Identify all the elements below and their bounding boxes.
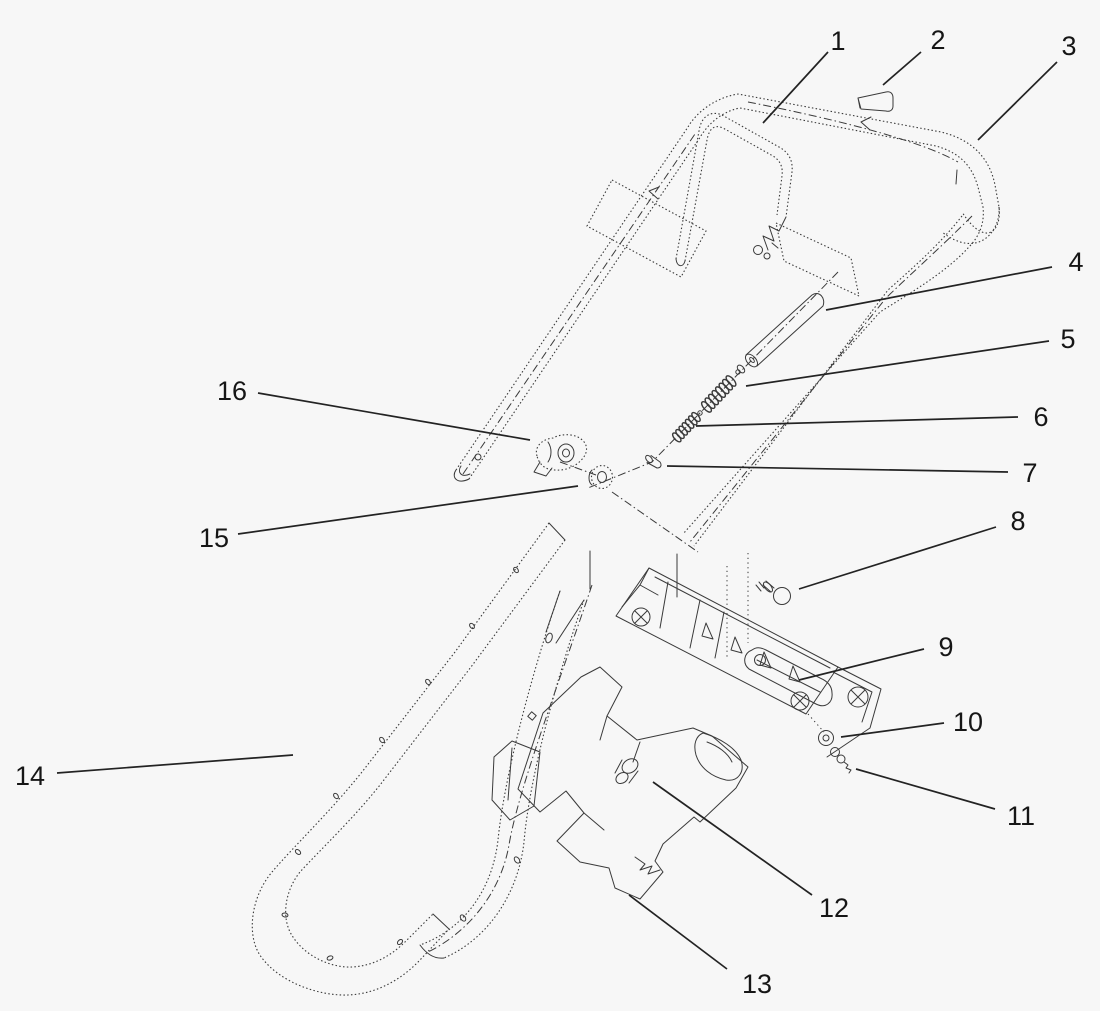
callout-7-label: 7 xyxy=(1022,458,1037,488)
callout-10-label: 10 xyxy=(953,707,983,737)
callout-12-label: 12 xyxy=(819,893,849,923)
callout-2-label: 2 xyxy=(930,25,945,55)
callout-1-label: 1 xyxy=(830,26,845,56)
callout-3-label: 3 xyxy=(1061,31,1076,61)
callout-15-label: 15 xyxy=(199,523,229,553)
callout-11-label: 11 xyxy=(1007,801,1035,831)
callout-5-label: 5 xyxy=(1060,324,1075,354)
exploded-diagram: 12345678910111213141516 xyxy=(0,0,1100,1011)
callout-16-label: 16 xyxy=(217,376,247,406)
callout-4-label: 4 xyxy=(1068,247,1083,277)
callout-13-label: 13 xyxy=(742,969,772,999)
callout-8-label: 8 xyxy=(1010,506,1025,536)
callout-6-label: 6 xyxy=(1033,402,1048,432)
callout-14-label: 14 xyxy=(15,761,45,791)
diagram-background xyxy=(0,0,1100,1011)
callout-9-label: 9 xyxy=(938,632,953,662)
